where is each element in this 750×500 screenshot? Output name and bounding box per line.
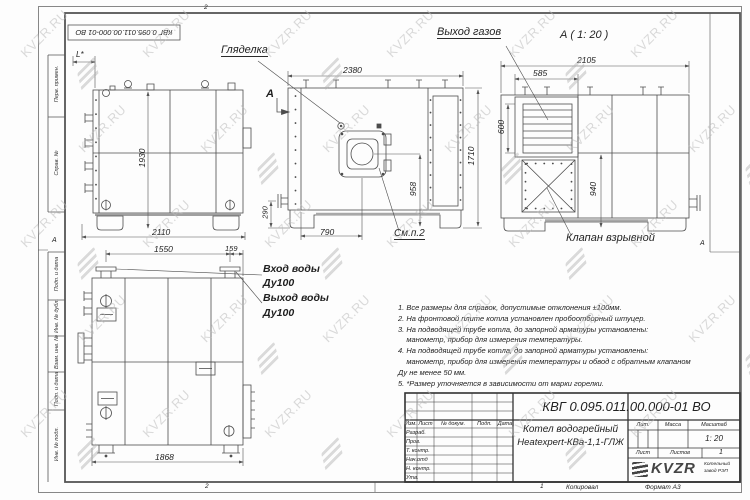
note-line: 4. На подводящей трубе котла, до запорно… <box>398 346 691 357</box>
scale-value: 1: 20 <box>688 434 740 443</box>
dim-front-width: 2380 <box>343 65 362 75</box>
col-list: Лист <box>417 421 434 427</box>
note-line: манометр, прибор для измерения температу… <box>398 357 691 368</box>
water-inlet-label: Вход воды <box>263 263 320 275</box>
dim-front-pipe: 290 <box>261 198 270 228</box>
row-utv: Утв. <box>406 475 419 481</box>
col-date: Дата <box>497 421 513 427</box>
dim-side-height: 1930 <box>137 143 147 173</box>
sheets-label: Листов <box>658 450 702 456</box>
note-line: манометр, прибор для измерения температу… <box>398 335 691 346</box>
col-doc: № докум. <box>434 421 472 427</box>
lit-label: Лит. <box>628 422 658 428</box>
frame-doc-number-rotated: КВГ 0.095.011.00.000-01 ВО <box>68 28 180 37</box>
col-izm: Изм. <box>404 421 418 427</box>
row-prov: Пров. <box>406 439 421 445</box>
zone-letter-right: А <box>700 240 705 247</box>
drawing-sheet: КВГ 0.095.011.00.000-01 ВО Перв. примен.… <box>0 0 750 500</box>
water-inlet-dn-label: Ду100 <box>263 277 294 289</box>
mass-label: Масса <box>658 422 688 428</box>
title-product-line1: Котел водогрейный <box>513 424 628 435</box>
note-line: Ду не менее 50 мм. <box>398 368 691 379</box>
company-logo-icon <box>632 462 648 477</box>
company-name-line1: Котельный <box>704 462 730 467</box>
rear-view <box>501 46 700 235</box>
stamp-sprav-no: Справ. № <box>54 133 60 193</box>
dim-back-width: 1868 <box>155 452 174 462</box>
dim-front-offset: 790 <box>320 227 334 237</box>
zone-number-bottom-1: 1 <box>540 483 544 490</box>
view-a-title: А ( 1: 20 ) <box>560 29 608 41</box>
see-note-label: См.п.2 <box>394 228 425 240</box>
note-line: 3. На подводящей трубе котла, до запорно… <box>398 325 691 336</box>
stamp-inv-podl: Инв. № подл. <box>54 414 60 474</box>
gas-outlet-label: Выход газов <box>437 26 501 39</box>
row-nachotd: Нач.отд <box>406 457 428 463</box>
zone-number-top: 2 <box>204 4 208 11</box>
company-name-line2: завод РЭП <box>704 469 728 474</box>
dim-front-burner: 958 <box>408 174 418 204</box>
dim-side-l: L* <box>76 50 84 59</box>
sight-glass-label: Гляделка <box>221 44 268 57</box>
dim-rear-valve-h: 940 <box>588 174 598 204</box>
dim-rear-width: 2105 <box>577 55 596 65</box>
format-label: Формат А3 <box>645 484 681 491</box>
notes-block: 1. Все размеры для справок, допустимые о… <box>398 303 691 389</box>
title-product-line2: Heatexpert-КВа-1,1-ГЛЖ <box>513 437 628 448</box>
title-doc-number: КВГ 0.095.011.00.000-01 ВО <box>513 399 740 414</box>
section-arrow-label: А <box>266 88 274 100</box>
dim-back-pipes: 1550 <box>154 244 173 254</box>
note-line: 2. На фронтовой плите котла установлен п… <box>398 314 691 325</box>
back-view <box>78 267 262 457</box>
sheet-label: Лист <box>628 450 658 456</box>
side-view <box>85 81 251 231</box>
kopiroval-label: Копировал <box>566 484 598 491</box>
zone-letter-left: А <box>52 237 57 244</box>
water-outlet-dn-label: Ду100 <box>263 307 294 319</box>
dim-rear-louver-h: 600 <box>496 112 506 142</box>
row-nkontr: Н. контр. <box>406 466 431 472</box>
dim-front-height: 1710 <box>466 141 476 171</box>
stamp-podp-data-2: Подп. и дата <box>54 359 60 419</box>
stamp-perv-primen: Перв. примен. <box>54 54 60 114</box>
col-sign: Подп. <box>472 421 497 427</box>
explosion-valve-label: Клапан взрывной <box>566 232 655 244</box>
back-view-dims <box>92 250 243 466</box>
note-line: 5. *Размер уточняется в зависимости от м… <box>398 379 691 390</box>
company-logo-text: KVZR <box>651 460 696 477</box>
note-line: 1. Все размеры для справок, допустимые о… <box>398 303 691 314</box>
row-tkontr: Т. контр. <box>406 448 430 454</box>
scale-label: Масштаб <box>688 422 740 428</box>
water-outlet-label: Выход воды <box>263 292 329 304</box>
zone-number-bottom-2: 2 <box>205 483 209 490</box>
dim-rear-louver-w: 585 <box>533 68 547 78</box>
row-razrab: Разраб. <box>406 430 426 436</box>
front-view <box>258 61 463 231</box>
sheets-value: 1 <box>702 449 740 456</box>
dim-side-width: 2110 <box>152 227 170 237</box>
dim-back-edge: 159 <box>225 244 238 253</box>
